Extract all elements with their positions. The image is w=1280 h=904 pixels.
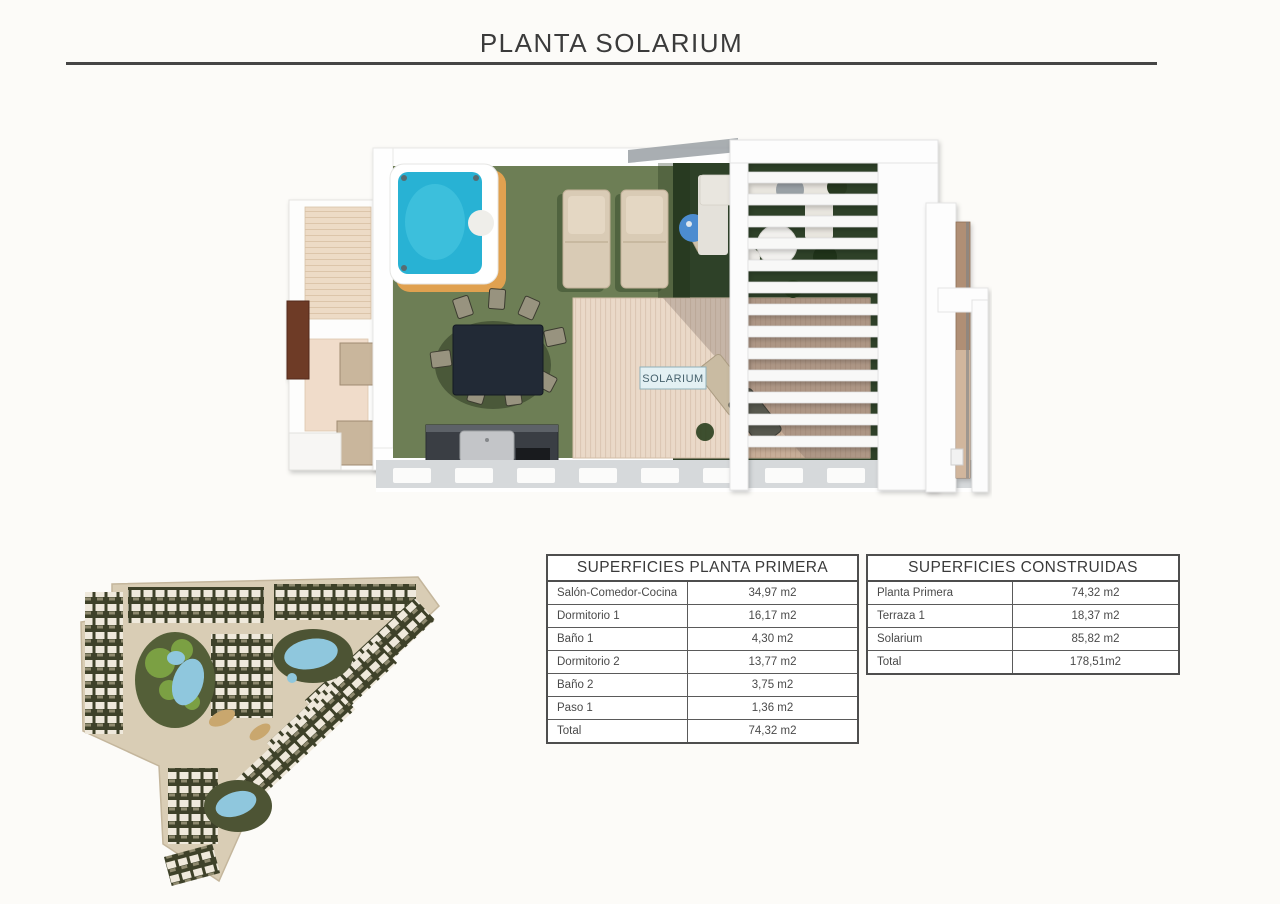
page-title: PLANTA SOLARIUM bbox=[66, 28, 1157, 59]
site-plan-illustration bbox=[81, 577, 439, 886]
room-label-text: SOLARIUM bbox=[642, 373, 703, 385]
room-name: Total bbox=[868, 651, 1013, 673]
area-value: 85,82 m2 bbox=[1013, 628, 1178, 650]
room-name: Dormitorio 1 bbox=[548, 605, 688, 627]
area-value: 16,17 m2 bbox=[688, 605, 857, 627]
table-row: Total 74,32 m2 bbox=[548, 720, 857, 742]
plan-sheet: PLANTA SOLARIUM bbox=[0, 0, 1280, 904]
room-name: Dormitorio 2 bbox=[548, 651, 688, 673]
room-name: Salón-Comedor-Cocina bbox=[548, 582, 688, 604]
table-row: Salón-Comedor-Cocina 34,97 m2 bbox=[548, 582, 857, 605]
area-value: 1,36 m2 bbox=[688, 697, 857, 719]
area-value: 74,32 m2 bbox=[1013, 582, 1178, 604]
site-plan bbox=[70, 560, 462, 898]
table-row: Total 178,51m2 bbox=[868, 651, 1178, 673]
table-row: Paso 1 1,36 m2 bbox=[548, 697, 857, 720]
room-name: Planta Primera bbox=[868, 582, 1013, 604]
table-row: Dormitorio 2 13,77 m2 bbox=[548, 651, 857, 674]
table-header: SUPERFICIES PLANTA PRIMERA bbox=[548, 556, 857, 582]
floor-plan: SOLARIUM bbox=[285, 127, 992, 499]
table-planta-primera: SUPERFICIES PLANTA PRIMERA Salón-Comedor… bbox=[546, 554, 859, 744]
jacuzzi bbox=[390, 164, 506, 292]
area-value: 18,37 m2 bbox=[1013, 605, 1178, 627]
right-annex bbox=[926, 203, 988, 492]
room-name: Total bbox=[548, 720, 688, 742]
table-header: SUPERFICIES CONSTRUIDAS bbox=[868, 556, 1178, 582]
room-name: Paso 1 bbox=[548, 697, 688, 719]
area-value: 4,30 m2 bbox=[688, 628, 857, 650]
side-terrace bbox=[287, 200, 379, 470]
room-name: Baño 2 bbox=[548, 674, 688, 696]
area-value: 3,75 m2 bbox=[688, 674, 857, 696]
title-divider bbox=[66, 62, 1157, 65]
area-value: 34,97 m2 bbox=[688, 582, 857, 604]
room-name: Baño 1 bbox=[548, 628, 688, 650]
table-row: Baño 1 4,30 m2 bbox=[548, 628, 857, 651]
area-value: 178,51m2 bbox=[1013, 651, 1178, 673]
table-row: Terraza 1 18,37 m2 bbox=[868, 605, 1178, 628]
table-row: Dormitorio 1 16,17 m2 bbox=[548, 605, 857, 628]
room-name: Solarium bbox=[868, 628, 1013, 650]
room-label: SOLARIUM bbox=[640, 367, 706, 389]
outdoor-kitchen bbox=[426, 425, 558, 466]
table-row: Planta Primera 74,32 m2 bbox=[868, 582, 1178, 605]
table-construidas: SUPERFICIES CONSTRUIDAS Planta Primera 7… bbox=[866, 554, 1180, 675]
area-value: 74,32 m2 bbox=[688, 720, 857, 742]
area-value: 13,77 m2 bbox=[688, 651, 857, 673]
table-row: Solarium 85,82 m2 bbox=[868, 628, 1178, 651]
table-row: Baño 2 3,75 m2 bbox=[548, 674, 857, 697]
room-name: Terraza 1 bbox=[868, 605, 1013, 627]
